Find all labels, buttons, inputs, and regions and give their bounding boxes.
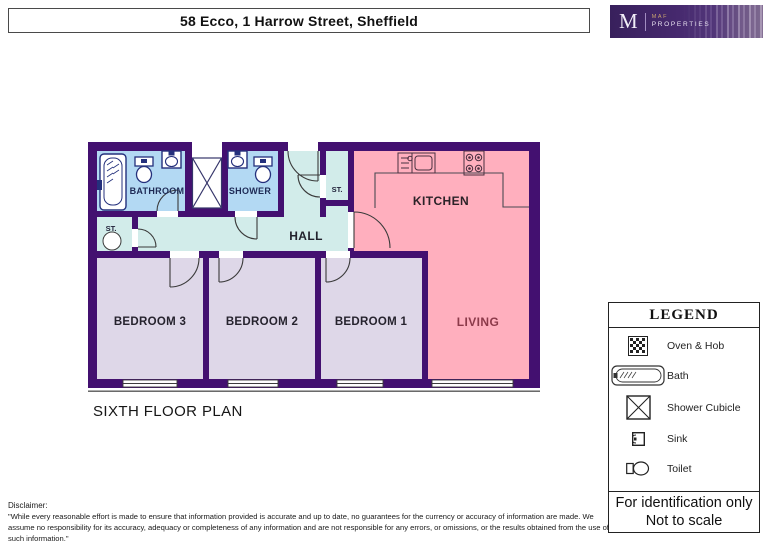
room-label-living: LIVING (457, 315, 499, 329)
st-top-door-opening (320, 175, 326, 198)
window (337, 380, 383, 387)
window (123, 380, 177, 387)
legend-label: Toilet (667, 463, 692, 475)
legend-box: LEGEND Oven & Hob (608, 302, 760, 533)
room-label-bedroom1: BEDROOM 1 (335, 316, 408, 328)
bedroom3-door-opening (170, 251, 199, 258)
ground-line (88, 391, 540, 392)
legend-row-shower-cubicle: Shower Cubicle (609, 395, 759, 420)
bedroom2-door-opening (219, 251, 243, 258)
bedroom1-door-opening (326, 251, 350, 258)
room-label-st-left: ST. (106, 224, 117, 233)
room-label-bathroom: BATHROOM (130, 186, 185, 196)
page-title: 58 Ecco, 1 Harrow Street, Sheffield (180, 13, 418, 29)
legend-title: LEGEND (609, 303, 759, 328)
legend-label: Bath (667, 370, 689, 382)
toilet-symbol (135, 157, 153, 183)
shower-cubicle-icon (609, 395, 667, 420)
st-top-under-fill (326, 206, 348, 217)
legend-row-sink: Sink (609, 432, 759, 446)
sink-icon (609, 432, 667, 446)
bath-icon (609, 365, 667, 386)
kitchen-door-opening (348, 212, 354, 248)
legend-row-toilet: Toilet (609, 461, 759, 476)
disclaimer-text: "While every reasonable effort is made t… (8, 511, 620, 544)
cylinder-symbol (103, 232, 121, 250)
legend-items: Oven & Hob Bath (609, 336, 759, 476)
room-label-bedroom3: BEDROOM 3 (114, 316, 186, 328)
entrance-opening (288, 142, 318, 151)
toilet-icon (609, 461, 667, 476)
title-bar: 58 Ecco, 1 Harrow Street, Sheffield (8, 8, 590, 33)
st-left-door-opening (132, 229, 138, 247)
legend-row-oven-hob: Oven & Hob (609, 336, 759, 356)
scale-note: Not to scale (646, 512, 723, 530)
legend-footer: For identification only Not to scale (609, 491, 759, 532)
logo-cityscape-image (683, 5, 763, 38)
legend-label: Oven & Hob (667, 340, 724, 352)
shower-door-opening (235, 211, 257, 217)
legend-row-bath: Bath (609, 365, 759, 386)
disclaimer-block: Disclaimer: "While every reasonable effo… (8, 501, 620, 544)
sink-symbol (162, 151, 181, 168)
room-label-st-top: ST. (332, 185, 343, 194)
brand-logo: M MAF PROPERTIES (610, 5, 763, 38)
window (432, 380, 513, 387)
shower-cubicle-symbol (193, 158, 222, 208)
room-label-hall: HALL (289, 229, 323, 243)
room-label-kitchen: KITCHEN (413, 194, 469, 208)
oven-hob-icon (609, 336, 667, 356)
room-label-shower: SHOWER (229, 186, 272, 196)
logo-divider (645, 13, 646, 31)
bath-symbol (97, 154, 126, 210)
legend-label: Shower Cubicle (667, 402, 741, 414)
floor-plan-title: SIXTH FLOOR PLAN (93, 403, 243, 420)
legend-label: Sink (667, 433, 687, 445)
sink-symbol (228, 151, 247, 168)
identification-note: For identification only (615, 494, 752, 512)
window (228, 380, 278, 387)
logo-monogram: M (619, 11, 638, 32)
room-label-bedroom2: BEDROOM 2 (226, 316, 298, 328)
bathroom-door-opening (157, 211, 178, 217)
toilet-symbol (254, 157, 272, 183)
disclaimer-label: Disclaimer: (8, 501, 620, 510)
